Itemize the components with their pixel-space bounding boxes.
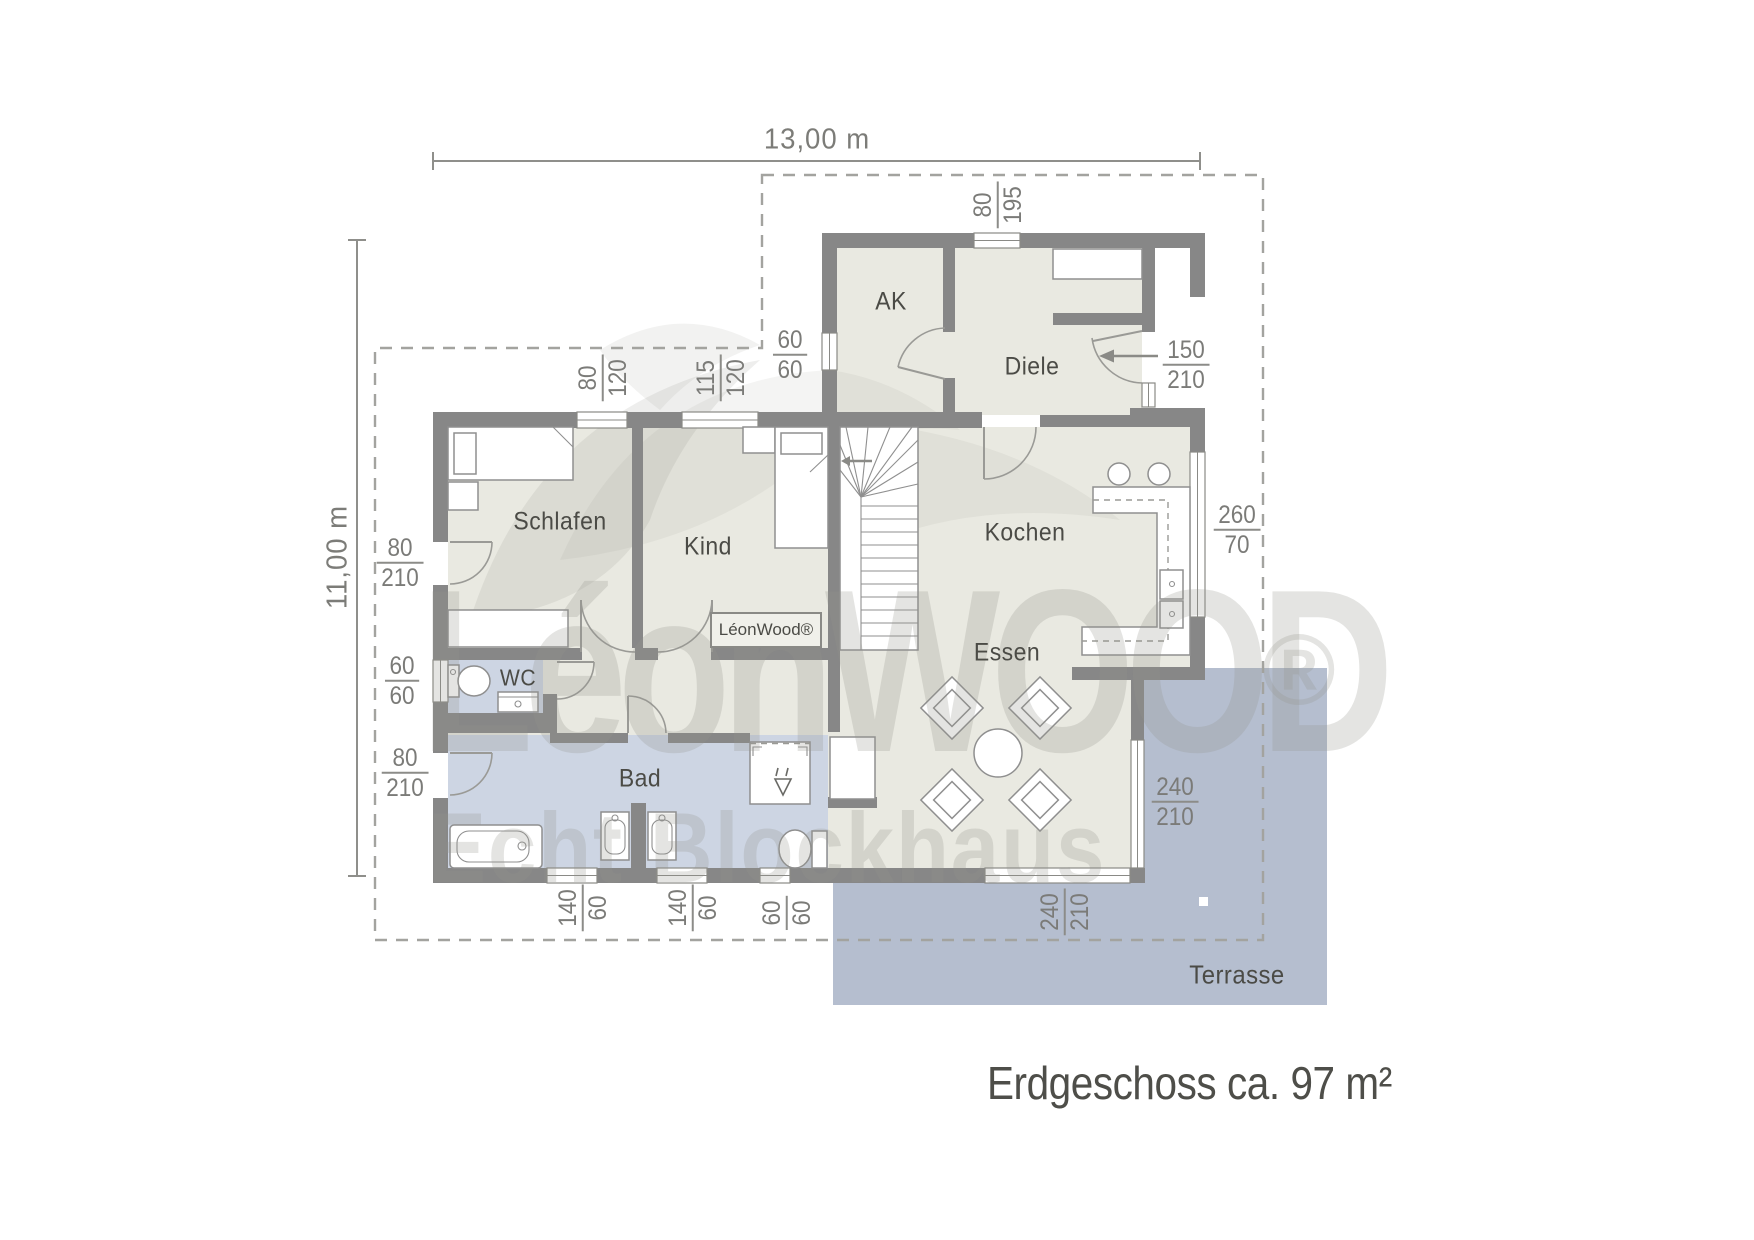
nightstand [743, 427, 775, 453]
dim-115-120: 115120 [693, 359, 750, 397]
terrace-post [1199, 897, 1208, 906]
pillow [454, 433, 476, 474]
dim-240-210-south: 240210 [1037, 893, 1094, 931]
dim-60-60-wc: 6060 [389, 653, 414, 710]
dim-80-195: 80195 [970, 186, 1027, 224]
dim-60-60-south: 6060 [759, 900, 816, 925]
room-label-diele: Diele [1005, 353, 1060, 382]
sink-bowl [1148, 463, 1170, 485]
dim-80-210-bad: 80210 [386, 745, 424, 802]
washbasin [648, 812, 676, 860]
room-label-terrasse: Terrasse [1189, 960, 1284, 991]
wardrobe [1053, 249, 1142, 279]
room-label-ak: AK [875, 288, 907, 317]
room-label-kochen: Kochen [985, 519, 1066, 548]
window-60x60-wc [433, 660, 448, 702]
toilet-bad [779, 830, 827, 868]
dim-60-60-ak: 6060 [777, 327, 802, 384]
dim-80-120: 80120 [575, 359, 632, 397]
shower [750, 742, 810, 804]
door-panel-essen-hall [830, 737, 875, 799]
window-80x120 [577, 412, 627, 428]
washbasin [601, 812, 629, 860]
room-label-bad: Bad [619, 765, 661, 794]
dim-140-60-b: 14060 [665, 889, 722, 927]
overall-width-label: 13,00 m [764, 124, 870, 157]
overall-depth-label: 11,00 m [322, 505, 355, 609]
window-140x60-b [657, 868, 707, 883]
window-240x210-south [985, 868, 1130, 883]
window-entry-sidelight [1142, 383, 1155, 407]
dining-table [974, 729, 1022, 777]
floor-plan-page: LéonWOOD ® Echt Blockhaus AK Diele Schla… [0, 0, 1754, 1240]
dim-240-210-east: 240210 [1156, 774, 1194, 831]
toilet-wc [448, 665, 490, 697]
pillow [781, 433, 822, 454]
cooktop-unit [1160, 570, 1183, 599]
dim-260-70: 26070 [1218, 502, 1256, 559]
dresser [448, 610, 568, 647]
staircase [840, 427, 918, 650]
window-260x70 [1190, 452, 1205, 617]
nightstand [448, 482, 478, 510]
cooktop-unit [1160, 601, 1183, 628]
window-80x195 [974, 233, 1020, 248]
sink-bowl [1108, 463, 1130, 485]
dim-150-210: 150210 [1167, 337, 1205, 394]
room-label-kind: Kind [684, 533, 732, 562]
dim-80-210-schlafen: 80210 [381, 535, 419, 592]
floor-plan-drawing [0, 0, 1754, 1240]
room-label-schlafen: Schlafen [513, 508, 606, 537]
window-140x60-a [547, 868, 597, 883]
window-60x60-bad [760, 868, 790, 883]
window-115x120 [682, 412, 758, 428]
window-240x210-east [1131, 740, 1144, 868]
dim-140-60-a: 14060 [555, 889, 612, 927]
page-title: Erdgeschoss ca. 97 m² [987, 1056, 1392, 1110]
room-label-wc: WC [500, 665, 536, 692]
room-label-essen: Essen [974, 639, 1040, 668]
wc-sink [498, 692, 538, 712]
window-60x60-ak [822, 333, 837, 370]
brand-badge: LéonWood® [710, 612, 822, 648]
